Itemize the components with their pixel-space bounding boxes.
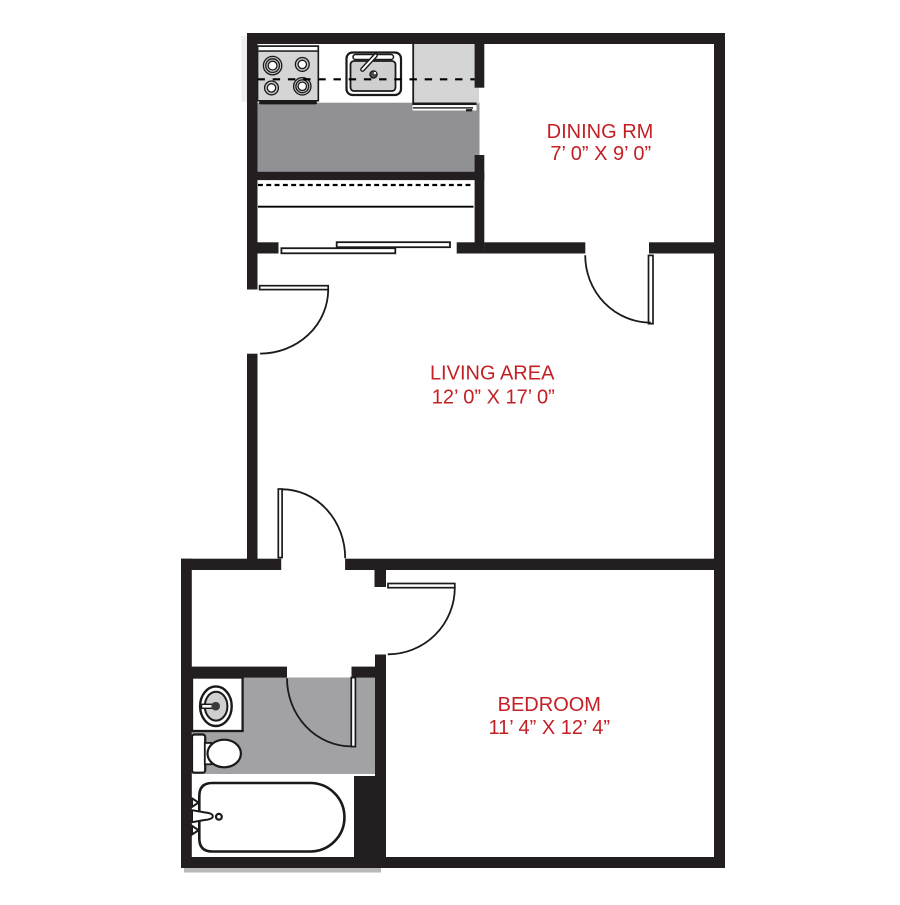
svg-text:11’ 4” X 12’ 4”: 11’ 4” X 12’ 4” <box>489 717 611 739</box>
svg-text:DINING RM: DINING RM <box>547 121 654 143</box>
svg-text:BEDROOM: BEDROOM <box>498 694 601 716</box>
svg-text:LIVING AREA: LIVING AREA <box>430 363 555 385</box>
svg-text:7’ 0” X 9’ 0”: 7’ 0” X 9’ 0” <box>550 143 651 165</box>
svg-text:12’ 0” X 17’ 0”: 12’ 0” X 17’ 0” <box>432 386 555 408</box>
